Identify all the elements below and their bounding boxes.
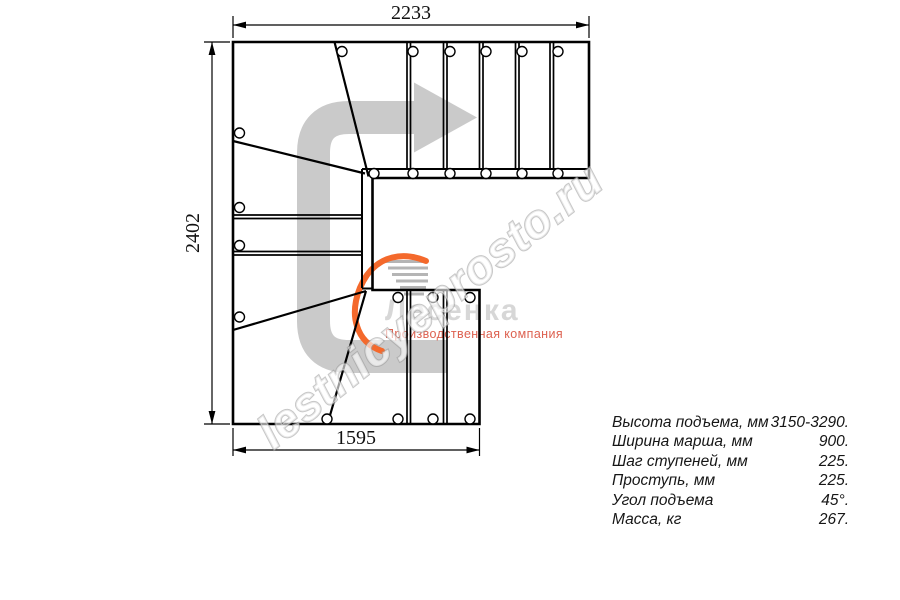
spec-label: Угол подъема bbox=[612, 491, 713, 510]
spec-value: 900. bbox=[819, 432, 849, 451]
spec-value: 3150-3290. bbox=[771, 413, 849, 432]
spec-value: 267. bbox=[819, 510, 849, 529]
dimension-top: 2233 bbox=[233, 2, 589, 38]
dim-arrow-icon bbox=[209, 42, 216, 55]
spec-label: Шаг ступеней, мм bbox=[612, 452, 748, 471]
dimension-left: 2402 bbox=[182, 42, 230, 424]
walk-arrow-head-icon bbox=[414, 83, 477, 153]
spec-row-climb-angle: Угол подъема 45°. bbox=[612, 491, 849, 510]
spec-row-flight-width: Ширина марша, мм 900. bbox=[612, 432, 849, 451]
spec-row-lift-height: Высота подъема, мм 3150-3290. bbox=[612, 413, 849, 432]
spec-table: Высота подъема, мм 3150-3290. Ширина мар… bbox=[612, 413, 849, 529]
dim-arrow-icon bbox=[467, 447, 480, 454]
spec-label: Масса, кг bbox=[612, 510, 681, 529]
spec-label: Проступь, мм bbox=[612, 471, 715, 490]
dim-arrow-icon bbox=[209, 411, 216, 424]
spec-label: Высота подъема, мм bbox=[612, 413, 769, 432]
dim-top-value: 2233 bbox=[391, 2, 431, 24]
spec-row-step-pitch: Шаг ступеней, мм 225. bbox=[612, 452, 849, 471]
spec-value: 225. bbox=[819, 452, 849, 471]
stair-drawing-page: Лесенка Производственная компания bbox=[0, 0, 900, 600]
dim-arrow-icon bbox=[233, 447, 246, 454]
spec-value: 225. bbox=[819, 471, 849, 490]
spec-row-mass: Масса, кг 267. bbox=[612, 510, 849, 529]
dim-arrow-icon bbox=[576, 22, 589, 29]
spec-value: 45°. bbox=[821, 491, 849, 510]
dim-bottom-value: 1595 bbox=[336, 427, 376, 449]
dim-left-value: 2402 bbox=[182, 213, 204, 253]
dim-arrow-icon bbox=[233, 22, 246, 29]
spec-row-tread-depth: Проступь, мм 225. bbox=[612, 471, 849, 490]
spec-label: Ширина марша, мм bbox=[612, 432, 753, 451]
